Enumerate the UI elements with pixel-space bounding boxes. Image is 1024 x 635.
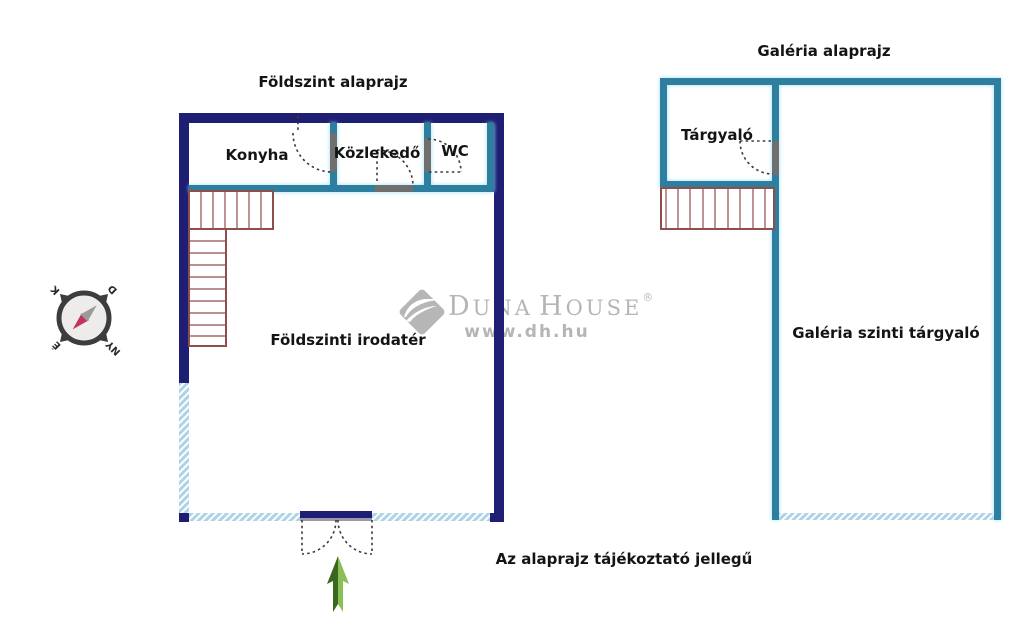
wall-main-right [994,78,1001,520]
wall-annex-left [660,78,667,188]
gallery-walls [660,78,1001,520]
compass-rose: É K D NY [20,253,152,385]
kitchen-door-arc [293,116,332,172]
stair-lower-run [189,229,226,346]
kitchen-door-jamb [330,133,337,172]
gallery-floor-plan [660,78,1001,520]
wall-right [494,113,504,522]
wall-left [179,113,189,383]
wall-top [179,113,504,123]
outer-walls [179,113,504,522]
window-wall-bottom [779,513,994,520]
entrance-double-door-arcs [302,520,372,554]
wc-door-arc [428,139,461,172]
wall-wc-right-lining [487,123,494,185]
compass-label-south: D [106,282,120,296]
wall-corner-br [490,513,504,522]
meeting-door-jamb [772,141,779,175]
wall-annex-bottom [660,181,779,188]
ground-floor-stairs [189,191,273,346]
arrow-right-half [338,556,349,612]
hallway-door-jamb [375,185,413,192]
inner-walls [189,123,494,192]
plan-drawing: É K D NY [0,0,1024,635]
arrow-left-half [327,556,338,612]
floorplan-page: DUNA HOUSE® www.dh.hu [0,0,1024,635]
wall-corner-bl [179,513,189,522]
window-wall-left [179,383,189,513]
entrance-lintel [300,511,372,518]
entrance-arrow-icon [327,556,349,612]
wall-top [660,78,1001,85]
ground-floor-plan [179,113,504,554]
wc-door-jamb [424,139,431,172]
hallway-door-arc [377,150,413,186]
gallery-stairs [661,188,774,229]
meeting-door-arc [740,141,773,174]
